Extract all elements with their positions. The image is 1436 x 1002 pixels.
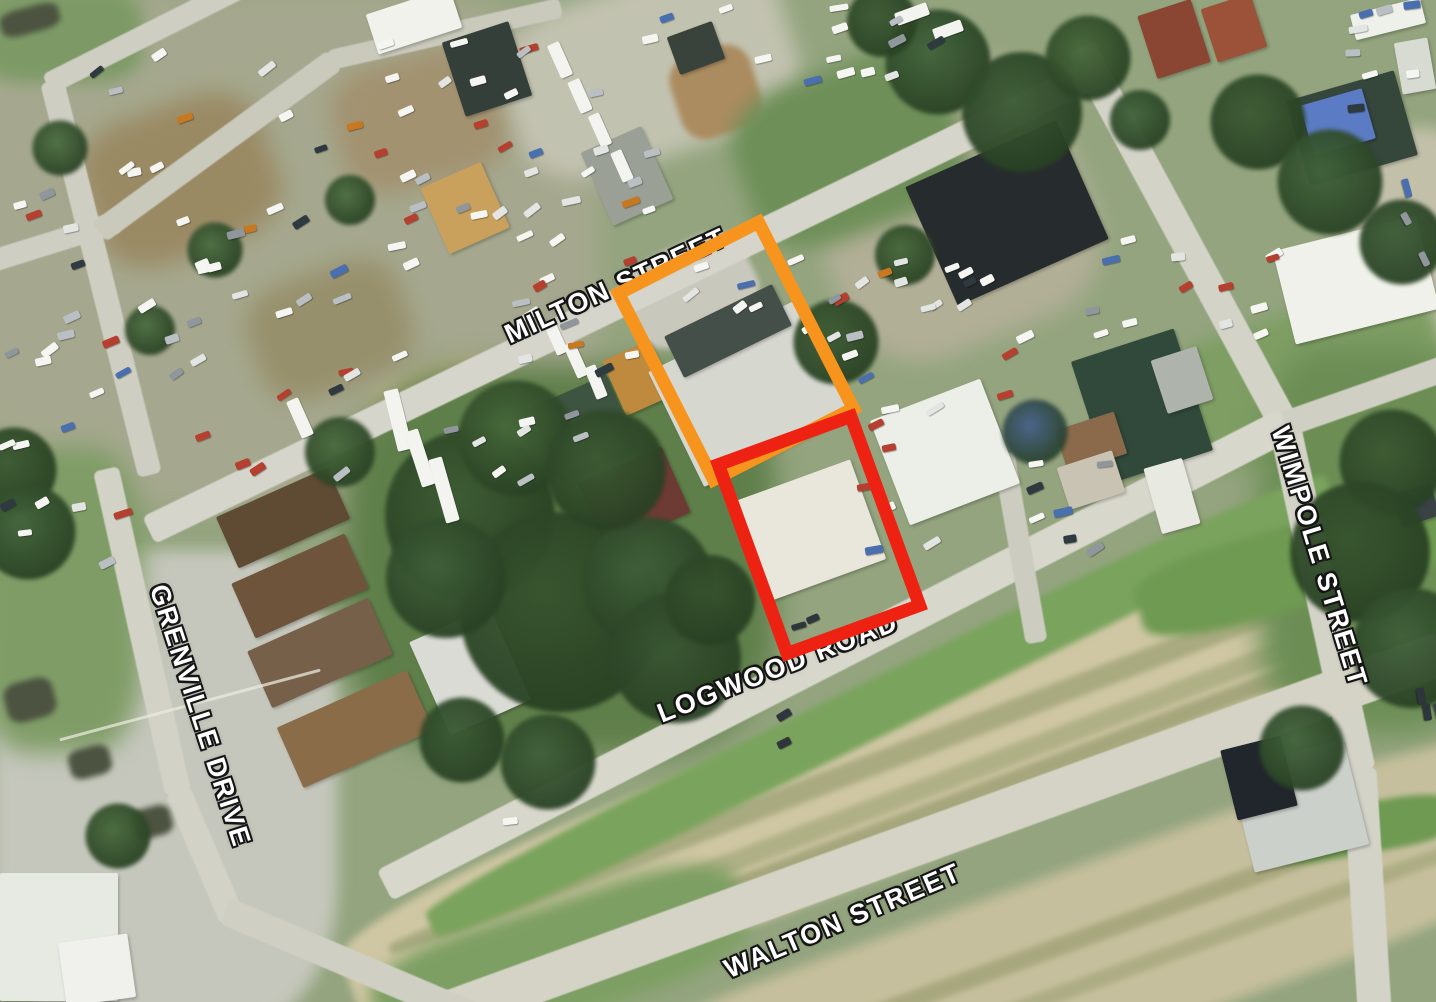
tree (125, 305, 175, 355)
building (1137, 0, 1211, 79)
building (1201, 0, 1268, 63)
car (1028, 512, 1045, 524)
car (831, 22, 849, 34)
car (1101, 254, 1120, 265)
car (1084, 306, 1099, 316)
aerial-map[interactable]: MILTON STREET LOGWOOD ROAD WALTON STREET… (0, 0, 1436, 1002)
car (1093, 329, 1109, 340)
tree (33, 121, 88, 176)
tree (665, 555, 755, 645)
car (1028, 459, 1044, 467)
car (1345, 49, 1360, 57)
car (1250, 302, 1268, 314)
tree (420, 698, 505, 783)
tree (86, 804, 151, 869)
car (787, 254, 805, 267)
car (502, 816, 517, 824)
car (826, 55, 842, 64)
tree (386, 518, 506, 638)
tree (546, 410, 666, 530)
building (1394, 37, 1436, 94)
tree (1003, 400, 1068, 465)
car (1016, 329, 1035, 344)
car (997, 389, 1014, 400)
car (1001, 347, 1019, 361)
car (1122, 317, 1139, 328)
building (58, 933, 136, 1002)
tree (325, 175, 375, 225)
car (829, 4, 849, 13)
car (1170, 252, 1184, 261)
car (1120, 235, 1136, 245)
car (922, 535, 941, 550)
aerial-imagery (0, 0, 1436, 1002)
car (1178, 281, 1194, 294)
car (1025, 481, 1044, 495)
tree (1110, 90, 1170, 150)
tree (501, 715, 596, 810)
tree (1360, 200, 1436, 285)
tree (1046, 16, 1131, 101)
tree (1260, 706, 1345, 791)
